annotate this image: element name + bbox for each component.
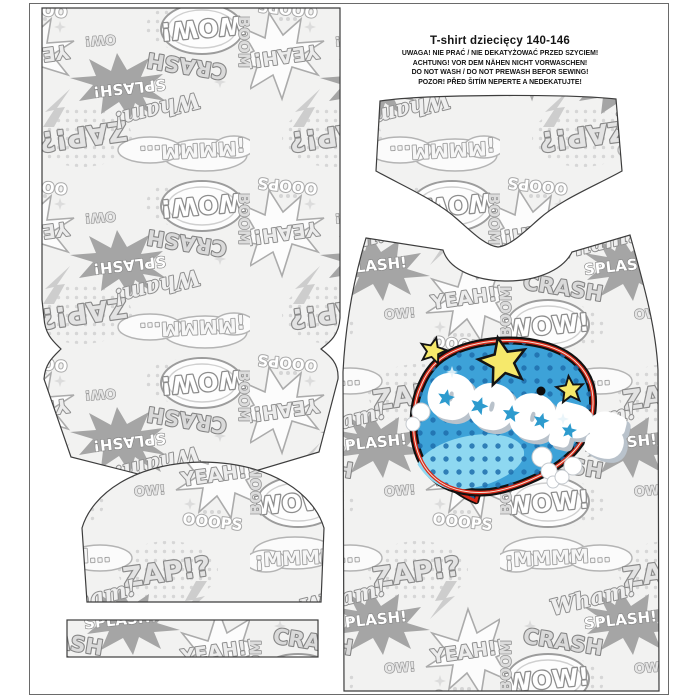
motif-eye-dot xyxy=(537,387,546,396)
sheet-canvas: ¡MMMM... ZAP!? Wham! SPLASH! CRASH YEAH!… xyxy=(0,0,700,700)
care-line: ACHTUNG! VOR DEM NÄHEN NICHT VORWASCHEN! xyxy=(350,59,650,69)
product-title: T-shirt dziecięcy 140-146 xyxy=(350,35,650,47)
piece-back-panel xyxy=(42,8,340,494)
piece-neckband-strip xyxy=(67,620,318,657)
care-instructions-block: T-shirt dziecięcy 140-146 UWAGA! NIE PRA… xyxy=(350,35,650,87)
care-line: POZOR! PŘED ŠITÍM NEPERTE A NEDEKATUJTE! xyxy=(350,78,650,88)
care-line: UWAGA! NIE PRAĆ / NIE DEKATYŻOWAĆ PRZED … xyxy=(350,49,650,59)
care-line: DO NOT WASH / DO NOT PREWASH BEFOR SEWIN… xyxy=(350,68,650,78)
pattern-sheet: ¡MMMM... ZAP!? Wham! SPLASH! CRASH YEAH!… xyxy=(0,0,700,700)
